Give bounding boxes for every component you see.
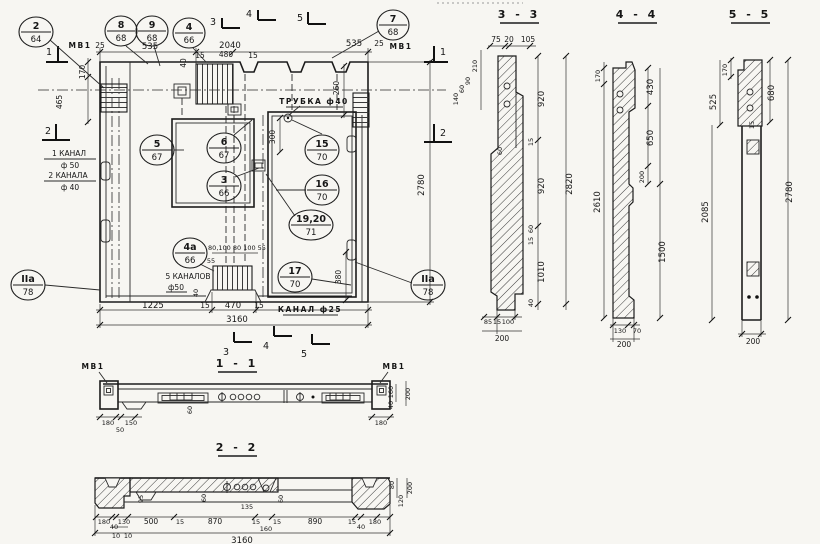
dim-260: 260	[332, 81, 341, 96]
callout-sheet: 66	[184, 36, 195, 46]
dim: 15	[348, 518, 356, 526]
dim-535-left: 535	[142, 42, 158, 52]
dim: 15	[273, 518, 281, 526]
dim: 130	[118, 518, 130, 526]
section-5-5-column	[742, 126, 761, 320]
dim-15-bot-l: 15	[200, 301, 210, 310]
label-5-canals-d: ф50	[168, 283, 184, 292]
dim-comb-55: 55	[207, 257, 215, 265]
callout-num: 5	[154, 139, 161, 150]
dim: 80	[388, 481, 396, 489]
section-2-2: 2 - 2 95 60 135 60 180 40 130 10 10 500 …	[92, 441, 414, 544]
dim-15-comb-r: 15	[248, 51, 258, 60]
marker-3-bottom	[234, 332, 252, 342]
dim: 40	[357, 523, 365, 531]
dim: 60	[496, 147, 504, 155]
callout-num: 6	[221, 137, 228, 148]
section-4-4-profile	[613, 62, 635, 318]
dim: 135	[241, 503, 253, 511]
dowel-dot	[747, 295, 751, 299]
dim: 60	[186, 406, 194, 414]
callout-sheet: 64	[31, 35, 42, 45]
marker-1-right-label: 1	[440, 47, 446, 58]
callout-sheet: 66	[219, 189, 230, 199]
dim: 15	[527, 138, 535, 146]
dim-2780: 2780	[417, 174, 427, 196]
callout-num: IIа	[21, 274, 34, 285]
dim: 200	[617, 340, 632, 349]
top-keyed-joint	[196, 64, 233, 104]
dim: 95	[137, 495, 145, 503]
dim-15-comb-l: 15	[195, 51, 205, 60]
marker-2-right-label: 2	[440, 128, 446, 139]
dim-465-left: 465	[55, 95, 64, 110]
embed-block	[747, 262, 759, 276]
marker-4-top	[258, 10, 276, 20]
dim: 130	[614, 327, 626, 335]
dim: 140	[452, 93, 460, 105]
dim-comb-row: 80,100 80 100 55	[208, 244, 266, 252]
dim: 85	[484, 318, 492, 326]
callout-sheet: 78	[423, 288, 434, 298]
section-1-1-body	[99, 372, 390, 409]
dim: 10	[112, 532, 120, 540]
mv1-label-s11-right: МВ1	[383, 362, 406, 371]
right-opening-outer	[268, 112, 356, 297]
dim-535-right: 535	[346, 39, 362, 49]
marker-2-left-label: 2	[45, 126, 51, 137]
dim: 70	[633, 327, 641, 335]
marker-4-top-label: 4	[246, 9, 252, 20]
dim: 90	[464, 77, 472, 85]
section-2-2-title: 2 - 2	[216, 441, 259, 454]
callout-sheet: 68	[388, 28, 399, 38]
dim-25-right: 25	[374, 39, 384, 48]
dim: 60	[200, 494, 208, 502]
dim: 200	[404, 388, 412, 400]
callout-sheet: 67	[219, 151, 230, 161]
marker-1-left-label: 1	[46, 47, 52, 58]
embed-block	[747, 140, 759, 154]
anchor-loop	[617, 107, 623, 113]
callout-num: 4	[186, 22, 193, 33]
callout-num: 17	[288, 266, 301, 277]
dim-comb-40: 40	[192, 289, 200, 297]
section-4-4: 4 - 4 170 2610 430 650 200 1500 130 70 2…	[593, 8, 668, 349]
note-canal1-d: ф 50	[61, 161, 80, 170]
technical-drawing: 1 1 2 2 3 4 5 3 4 5	[0, 0, 820, 544]
dim: 20	[504, 35, 514, 44]
dim-170-left: 170	[78, 65, 87, 80]
dim: 180	[102, 419, 114, 427]
dim-total: 2610	[593, 191, 603, 213]
callout-num: 16	[315, 179, 329, 190]
callout-sheet: 70	[317, 193, 328, 203]
anchor-loop	[504, 83, 510, 89]
dim: 1010	[537, 261, 547, 283]
marker-3-top-label: 3	[210, 17, 216, 28]
dim: 15	[527, 237, 535, 245]
dim: 75	[491, 35, 501, 44]
dim: 100	[502, 318, 514, 326]
dim: 1500	[658, 241, 668, 263]
anchor-loop	[504, 101, 510, 107]
dim: 40	[527, 299, 535, 307]
callout-num: 2	[33, 21, 40, 32]
callout-sheet: 70	[317, 153, 328, 163]
marker-3-top	[222, 18, 240, 28]
dim-300: 300	[268, 130, 277, 145]
dim: 50	[116, 426, 124, 434]
callout-num: IIа	[421, 274, 434, 285]
callout-num: 19,20	[296, 214, 326, 225]
section-5-5-title: 5 - 5	[729, 8, 772, 21]
section-3-3-profile	[491, 56, 523, 310]
marker-5-bottom	[312, 334, 330, 344]
callout-sheet: 66	[185, 256, 196, 266]
dim: 650	[646, 130, 656, 146]
dim: 160	[260, 525, 272, 533]
dim-total: 2780	[785, 181, 795, 203]
dim-3160: 3160	[226, 315, 248, 325]
mv1-label-right: МВ1	[390, 42, 413, 51]
note-canal2: 2 КАНАЛА	[48, 171, 88, 180]
main-plan-view: 1 1 2 2 3 4 5 3 4 5	[11, 9, 452, 360]
note-canal1: 1 КАНАЛ	[52, 149, 86, 158]
marker-4-bottom-label: 4	[263, 341, 269, 352]
section-1-1-title: 1 - 1	[216, 357, 259, 370]
section-2-2-top-band	[130, 478, 278, 492]
mv1-label-s11-left: МВ1	[82, 362, 105, 371]
marker-4-bottom	[274, 326, 292, 336]
dim: 60	[527, 225, 535, 233]
right-opening-inner	[272, 116, 352, 293]
dim: 180	[98, 518, 110, 526]
dim-470: 470	[225, 301, 241, 311]
dim-1225: 1225	[142, 301, 164, 311]
dim: 170	[721, 64, 729, 76]
dim: 200	[495, 334, 510, 343]
dim: 430	[646, 79, 656, 95]
anchor-loop	[747, 105, 753, 111]
dim: 200	[406, 482, 414, 494]
left-opening-inner	[176, 123, 250, 203]
dim: 210	[471, 60, 479, 72]
dim: 40	[387, 401, 395, 409]
marker-5-top-label: 5	[297, 13, 303, 24]
dim: 180	[369, 518, 381, 526]
dim: 60	[277, 495, 285, 503]
dim: 525	[709, 94, 719, 110]
dim: 2085	[701, 201, 711, 223]
dim: 10	[124, 532, 132, 540]
dim: 105	[521, 35, 536, 44]
callout-sheet: 67	[152, 153, 163, 163]
callout-num: 8	[118, 20, 125, 31]
dim: 200	[746, 337, 761, 346]
callout-num: 7	[390, 14, 397, 25]
section-3-3: 3 - 3 75 20 105 210 90 60 140 920 15 60 …	[452, 8, 575, 343]
dim: 500	[144, 517, 159, 526]
dim: 15	[176, 518, 184, 526]
dim: 120	[397, 495, 405, 507]
dim: 170	[594, 70, 602, 82]
callout-num: 15	[315, 139, 328, 150]
dim: 200	[638, 171, 646, 183]
callout-num: 4а	[183, 242, 196, 253]
dim-15-bot-r: 15	[254, 301, 264, 310]
label-5-canals: 5 КАНАЛОВ	[165, 272, 210, 281]
dim-380: 380	[334, 270, 343, 285]
dim-40-vert: 40	[179, 58, 188, 68]
callout-sheet: 70	[290, 280, 301, 290]
dim: 920	[537, 91, 547, 107]
marker-5-bottom-label: 5	[301, 349, 307, 360]
callout-sheet: 78	[23, 288, 34, 298]
dim-25-left: 25	[95, 41, 105, 50]
section-3-3-title: 3 - 3	[498, 8, 541, 21]
top-left-anchor-block	[101, 84, 127, 112]
callout-sheet: 71	[306, 228, 317, 238]
callout-sheet: 68	[116, 34, 127, 44]
dim: 60	[458, 85, 466, 93]
dim-total: 3160	[231, 536, 253, 544]
anchor-loop	[747, 89, 753, 95]
dim-total: 2820	[565, 173, 575, 195]
dim: 870	[208, 517, 223, 526]
callout-num: 9	[149, 20, 156, 31]
dim: 160	[387, 386, 395, 398]
section-1-1: 1 - 1 МВ1 МВ1 180 50 150 180 60 160 40 2…	[82, 357, 412, 434]
main-dim-ticks	[85, 49, 433, 328]
dim: 680	[767, 85, 777, 101]
bottom-channel-comb	[213, 266, 252, 290]
dim: 150	[125, 419, 137, 427]
mv1-label-left: МВ1	[69, 41, 92, 50]
dim-480: 480	[219, 50, 234, 59]
dim: 920	[537, 178, 547, 194]
section-5-5: 5 - 5 170 525 2085 680 15 2780 200	[701, 8, 795, 346]
tube-label: ТРУБКА ф40	[279, 97, 349, 106]
drawing-sheet: 1 1 2 2 3 4 5 3 4 5	[0, 0, 820, 544]
marker-5-top	[308, 12, 326, 24]
dim: 890	[308, 517, 323, 526]
left-note-block: 1 КАНАЛ ф 50 2 КАНАЛА ф 40	[44, 149, 96, 192]
section-4-4-title: 4 - 4	[616, 8, 659, 21]
canal25-label: КАНАЛ ф25	[278, 305, 342, 314]
note-canal2-d: ф 40	[61, 183, 80, 192]
dim: 15	[748, 121, 756, 129]
anchor-loop	[617, 91, 623, 97]
dim: 15	[493, 318, 501, 326]
callout-num: 3	[221, 175, 228, 186]
dowel-dot	[755, 295, 759, 299]
left-opening-outer	[172, 119, 254, 207]
marker-2-right	[424, 124, 452, 142]
dim: 180	[375, 419, 387, 427]
